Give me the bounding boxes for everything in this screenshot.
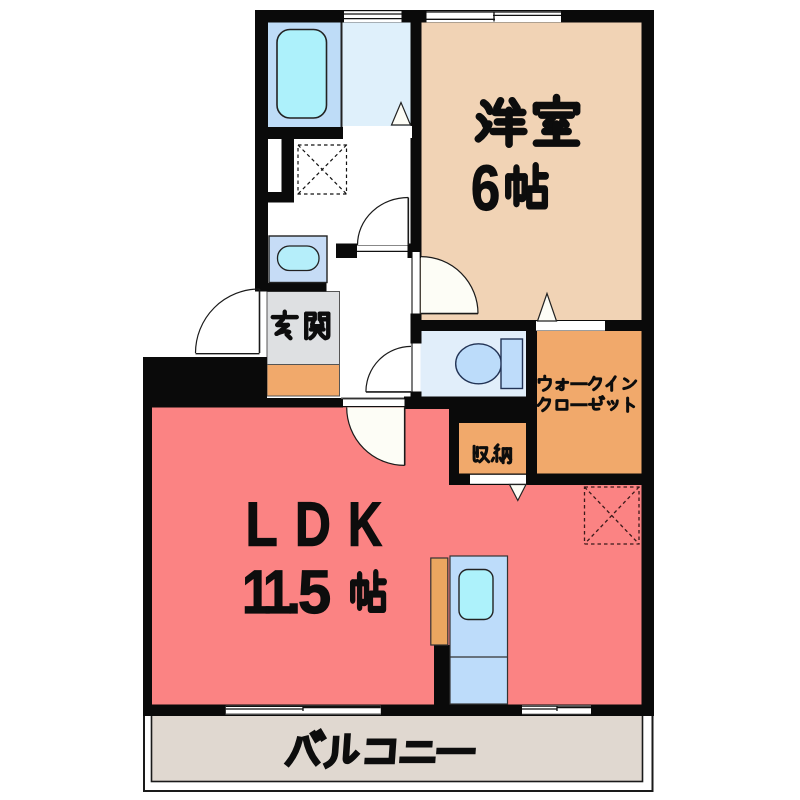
svg-text:6: 6 — [471, 153, 500, 224]
svg-text:D: D — [295, 489, 331, 559]
svg-text:L: L — [246, 491, 278, 560]
svg-text:5: 5 — [298, 557, 331, 626]
svg-text:K: K — [348, 489, 382, 559]
svg-text:11.: 11. — [242, 559, 297, 627]
